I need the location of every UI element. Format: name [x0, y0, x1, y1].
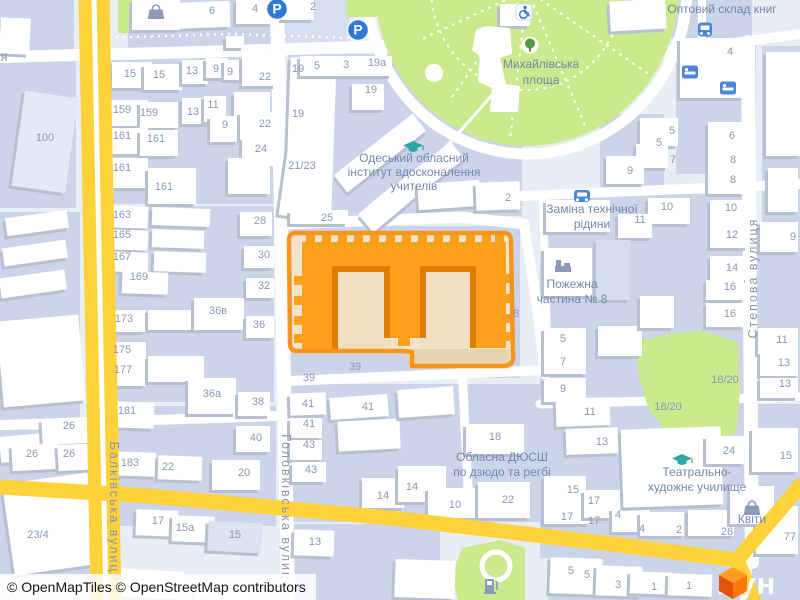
building	[637, 296, 674, 331]
house-number: 17	[588, 515, 600, 527]
house-number: 163	[113, 209, 131, 221]
building	[0, 315, 86, 411]
house-number: 15	[153, 69, 165, 81]
house-number: 77	[784, 531, 796, 543]
house-number: 9	[790, 231, 796, 243]
house-number: 12	[726, 229, 738, 241]
house-number: 15	[229, 529, 241, 541]
svg-text:P: P	[353, 22, 362, 38]
parking-icon: P	[348, 20, 369, 41]
house-number: 17	[152, 515, 164, 527]
building	[149, 229, 205, 252]
house-number: 1	[686, 580, 692, 592]
house-number: 15	[124, 68, 136, 80]
house-number: 21/23	[288, 160, 316, 172]
building	[541, 476, 586, 503]
building	[394, 386, 455, 421]
building	[705, 122, 746, 153]
house-number: 36в	[209, 305, 227, 317]
house-number: 4	[252, 3, 258, 15]
building	[595, 326, 642, 359]
building	[705, 150, 744, 175]
house-number: 177	[114, 364, 132, 376]
house-number: 165	[113, 229, 131, 241]
house-number: 22	[502, 494, 514, 506]
street-name-label: Степова вулиця	[746, 218, 760, 339]
building	[326, 394, 389, 423]
house-number: 175	[113, 344, 131, 356]
lun-logo-cube-icon	[718, 566, 748, 600]
poi-label: художнє училище	[648, 480, 747, 494]
house-number: 9	[227, 66, 233, 78]
house-number: 6	[729, 130, 735, 142]
building	[225, 158, 270, 197]
house-number: 28	[254, 215, 266, 227]
house-number: 13	[779, 378, 791, 390]
house-number: 22	[162, 461, 174, 473]
house-number: 18	[489, 431, 501, 443]
house-number: 173	[115, 313, 133, 325]
building	[563, 427, 619, 458]
building	[553, 397, 611, 430]
house-number: 3	[343, 59, 349, 71]
poi-label: Заміна технічної	[546, 202, 638, 216]
house-number: 41	[362, 401, 374, 413]
house-number: 4	[615, 509, 621, 521]
park-building	[425, 64, 443, 82]
poi-label: рідини	[574, 217, 610, 231]
street-name-label: я	[1, 50, 10, 64]
house-number: 15	[567, 484, 579, 496]
poi-label: площа	[523, 73, 560, 87]
house-number: 5	[584, 569, 590, 581]
house-number: 39	[303, 372, 315, 384]
house-number: 20	[238, 467, 250, 479]
house-number: 183	[121, 457, 139, 469]
house-number: 161	[147, 133, 165, 145]
poi-label: Оптовий склад книг	[667, 2, 777, 16]
house-number: 5	[314, 60, 320, 72]
house-number: 11	[207, 99, 218, 111]
house-number: 13	[596, 436, 608, 448]
house-number: 17	[588, 495, 600, 507]
house-number: 10	[661, 201, 673, 213]
house-number: 3	[615, 579, 621, 591]
house-number: 9	[213, 63, 219, 75]
tree-icon	[522, 37, 539, 54]
selected-building[interactable]	[289, 233, 514, 366]
building	[209, 460, 260, 493]
house-number: 8	[730, 154, 736, 166]
building	[473, 181, 521, 214]
wheelchair-icon	[516, 4, 532, 20]
house-number: 13	[186, 65, 198, 77]
poi-label: учителів	[391, 179, 438, 193]
house-number: 43	[305, 464, 317, 476]
poi-label: Квіти	[738, 512, 766, 526]
house-number: 16	[724, 281, 736, 293]
house-number: 6	[209, 5, 215, 17]
house-number: 1	[651, 581, 657, 593]
poi-label: Обласна ДЮСШ	[456, 450, 548, 464]
house-number: 22	[259, 118, 271, 130]
house-number: 161	[113, 130, 131, 142]
house-number: 24	[255, 143, 267, 155]
house-number: 40	[250, 432, 262, 444]
house-number: 16	[724, 308, 736, 320]
house-number: 14	[726, 262, 738, 274]
building	[763, 52, 800, 159]
house-number: 41	[303, 418, 315, 430]
house-number: 23/4	[27, 529, 48, 541]
house-number: 25	[321, 212, 333, 224]
house-number: 19а	[368, 57, 387, 69]
house-number: 8	[513, 308, 519, 320]
house-number: 30	[258, 249, 270, 261]
map-svg[interactable]: PP64215151399221591591311161161922241001…	[0, 0, 800, 600]
building	[287, 210, 348, 227]
house-number: 2	[505, 192, 511, 204]
house-number: 100	[36, 132, 54, 144]
building	[334, 418, 401, 454]
house-number: 11	[776, 334, 787, 346]
house-number: 5	[560, 333, 566, 345]
house-number: 159	[113, 104, 131, 116]
building	[223, 36, 244, 51]
building	[151, 251, 207, 276]
building	[705, 172, 744, 197]
house-number: 2	[676, 524, 682, 536]
building	[757, 378, 798, 401]
house-number: 9	[627, 165, 633, 177]
house-number: 161	[113, 162, 131, 174]
house-number: 169	[130, 271, 148, 283]
house-number: 14	[406, 481, 418, 493]
building	[765, 168, 798, 215]
house-number: 15а	[176, 522, 195, 534]
poi-label: Одеський обласний	[359, 151, 469, 165]
house-number: 10	[449, 499, 461, 511]
car-icon	[574, 190, 590, 202]
house-number: 181	[118, 405, 136, 417]
bus-icon	[698, 23, 712, 37]
house-number: 26	[63, 448, 75, 460]
house-number: 36а	[203, 388, 222, 400]
house-number: 26	[721, 526, 733, 538]
building	[603, 156, 644, 187]
poi-label: Театрально-	[662, 465, 731, 479]
house-number: 167	[113, 251, 131, 263]
house-number: 38	[252, 396, 264, 408]
house-number: 5	[656, 137, 662, 149]
street-name-label: Балківська вулиця	[107, 442, 121, 583]
house-number: 7	[560, 356, 566, 368]
house-number: 18/20	[654, 401, 682, 413]
house-number: 8	[730, 174, 736, 186]
building	[606, 0, 667, 35]
house-number: 22	[259, 71, 271, 83]
poi-label: Михайлівська	[503, 57, 580, 71]
house-number: 4	[727, 46, 733, 58]
map-canvas[interactable]: PP64215151399221591591311161161922241001…	[0, 0, 800, 600]
house-number: 26	[26, 448, 38, 460]
house-number: 17	[561, 511, 573, 523]
poi-label: по дзюдо та регбі	[453, 465, 550, 479]
poi-label: інститут вдосконалення	[348, 165, 481, 179]
house-number: 10	[725, 202, 737, 214]
house-number: 18/20	[711, 374, 739, 386]
house-number: 11	[584, 406, 595, 418]
bed-icon	[720, 82, 736, 95]
house-number: 13	[309, 536, 321, 548]
house-number: 43	[303, 439, 315, 451]
building	[149, 207, 211, 230]
house-number: 39	[349, 361, 361, 373]
poi-label: частина № 8	[537, 292, 608, 306]
house-number: 7	[670, 154, 676, 166]
house-number: 24	[723, 445, 735, 457]
house-number: 41	[302, 398, 314, 410]
house-number: 9	[222, 119, 228, 131]
poi-label: Пожежна	[546, 277, 597, 291]
lun-logo: лун	[718, 566, 776, 600]
bed-icon	[682, 66, 698, 79]
building	[391, 559, 455, 600]
street-name-label: Головківська вулиця	[279, 434, 293, 590]
house-number: 19	[292, 108, 304, 120]
house-number: 26	[63, 420, 75, 432]
house-number: 19	[365, 84, 377, 96]
house-number: 2	[310, 1, 316, 13]
svg-text:P: P	[272, 1, 281, 17]
house-number: 14	[377, 490, 389, 502]
house-number: 159	[140, 107, 158, 119]
house-number: 32	[258, 280, 270, 292]
house-number: 161	[155, 181, 173, 193]
house-number: 5	[669, 125, 675, 137]
house-number: 36	[253, 319, 265, 331]
house-number: 5	[568, 565, 574, 577]
house-number: 13	[187, 106, 199, 118]
house-number: 15	[780, 450, 792, 462]
house-number: 13	[778, 357, 790, 369]
house-number: 9	[560, 383, 566, 395]
map-attribution: © OpenMapTiles © OpenStreetMap contribut…	[0, 574, 316, 600]
parking-icon: P	[267, 0, 288, 20]
house-number: 19	[292, 63, 304, 75]
house-number: 4	[639, 523, 645, 535]
